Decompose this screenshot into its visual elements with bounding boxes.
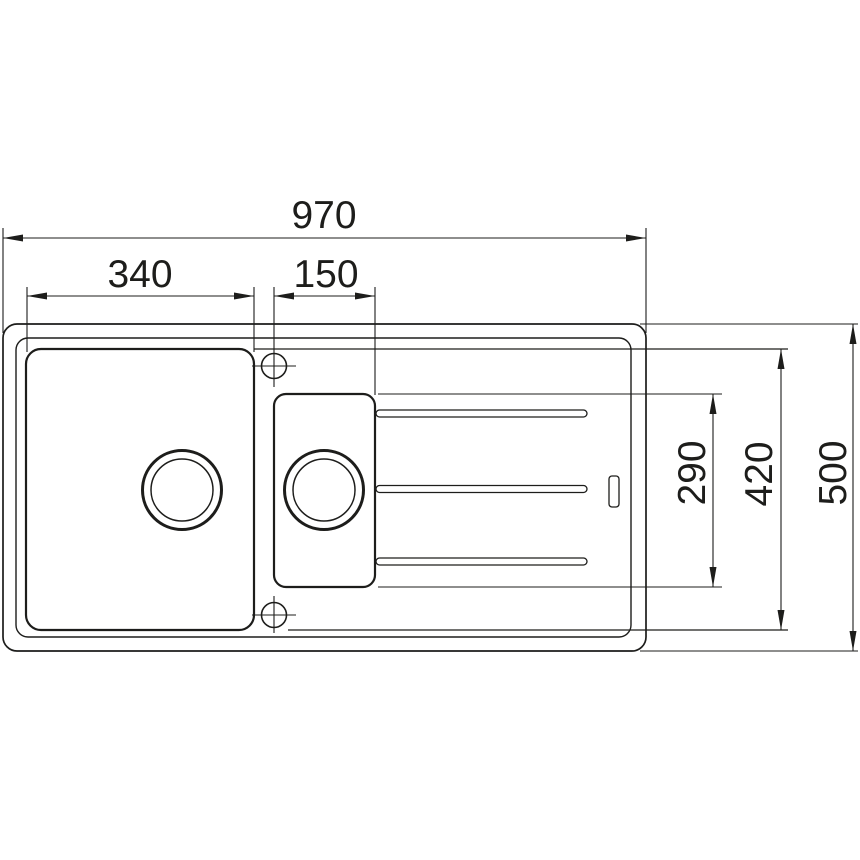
main-bowl bbox=[26, 349, 254, 630]
arrowhead bbox=[850, 631, 857, 651]
arrowhead bbox=[3, 235, 23, 242]
overflow-slot bbox=[609, 476, 619, 507]
drainer-groove bbox=[376, 410, 587, 417]
main-bowl-drain-outer bbox=[143, 451, 222, 530]
half-bowl bbox=[274, 394, 375, 587]
dim-label-inner-depth: 420 bbox=[738, 441, 781, 506]
arrowhead bbox=[710, 567, 717, 587]
dim-label-half-bowl-depth: 290 bbox=[671, 440, 714, 505]
arrowhead bbox=[778, 610, 785, 630]
arrowhead bbox=[778, 349, 785, 369]
half-bowl-drain-inner bbox=[293, 459, 355, 521]
sink-outer-outline bbox=[3, 324, 646, 651]
drainer-groove bbox=[376, 486, 587, 493]
arrowhead bbox=[850, 324, 857, 344]
dim-label-main-bowl-width: 340 bbox=[107, 253, 172, 296]
dimension-drawing: 970 340 150 290 420 500 bbox=[0, 0, 860, 860]
arrowhead bbox=[274, 293, 294, 300]
arrowhead bbox=[626, 235, 646, 242]
arrowhead bbox=[710, 394, 717, 414]
drainer-groove bbox=[376, 558, 587, 565]
dim-label-half-bowl-width: 150 bbox=[293, 253, 358, 296]
arrowhead bbox=[27, 293, 47, 300]
half-bowl-drain-outer bbox=[285, 451, 364, 530]
dim-label-total-depth: 500 bbox=[812, 440, 855, 505]
sink-rim-outline bbox=[16, 338, 631, 637]
dim-label-total-width: 970 bbox=[291, 194, 356, 237]
arrowhead bbox=[234, 293, 254, 300]
main-bowl-drain-inner bbox=[151, 459, 213, 521]
